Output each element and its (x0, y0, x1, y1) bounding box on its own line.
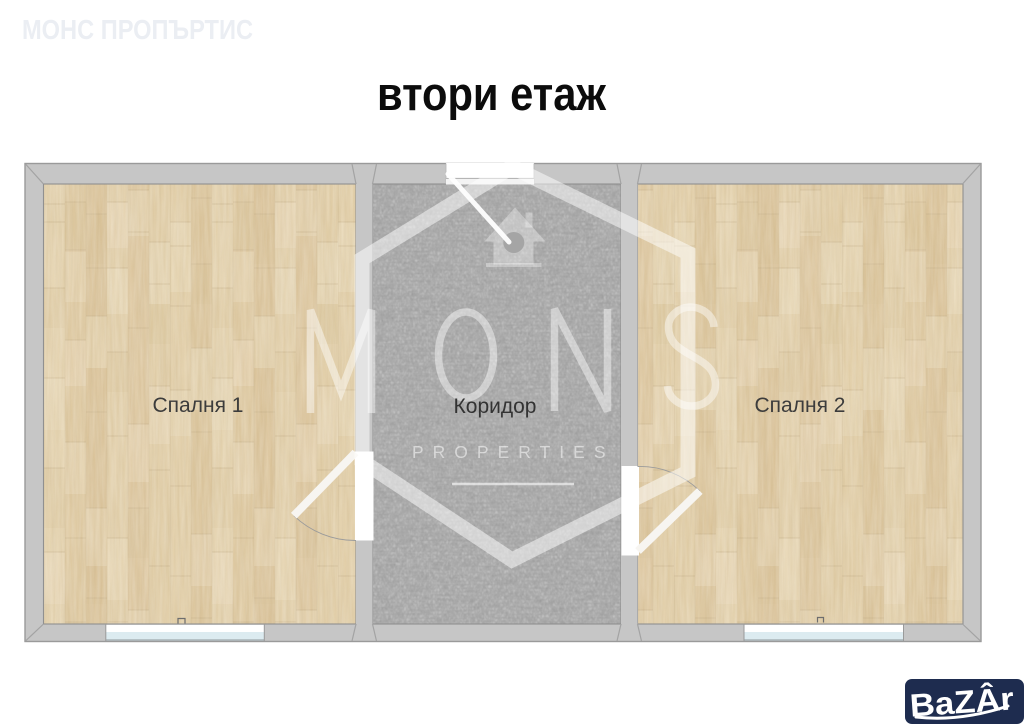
svg-text:Спалня 2: Спалня 2 (755, 394, 846, 417)
svg-text:Коридор: Коридор (454, 395, 537, 418)
svg-text:втори етаж: втори етаж (377, 67, 607, 120)
svg-text:PROPERTIES: PROPERTIES (412, 442, 615, 462)
svg-text:МОНС ПРОПЪРТИС: МОНС ПРОПЪРТИС (22, 14, 253, 45)
svg-text:Спалня 1: Спалня 1 (153, 394, 244, 417)
